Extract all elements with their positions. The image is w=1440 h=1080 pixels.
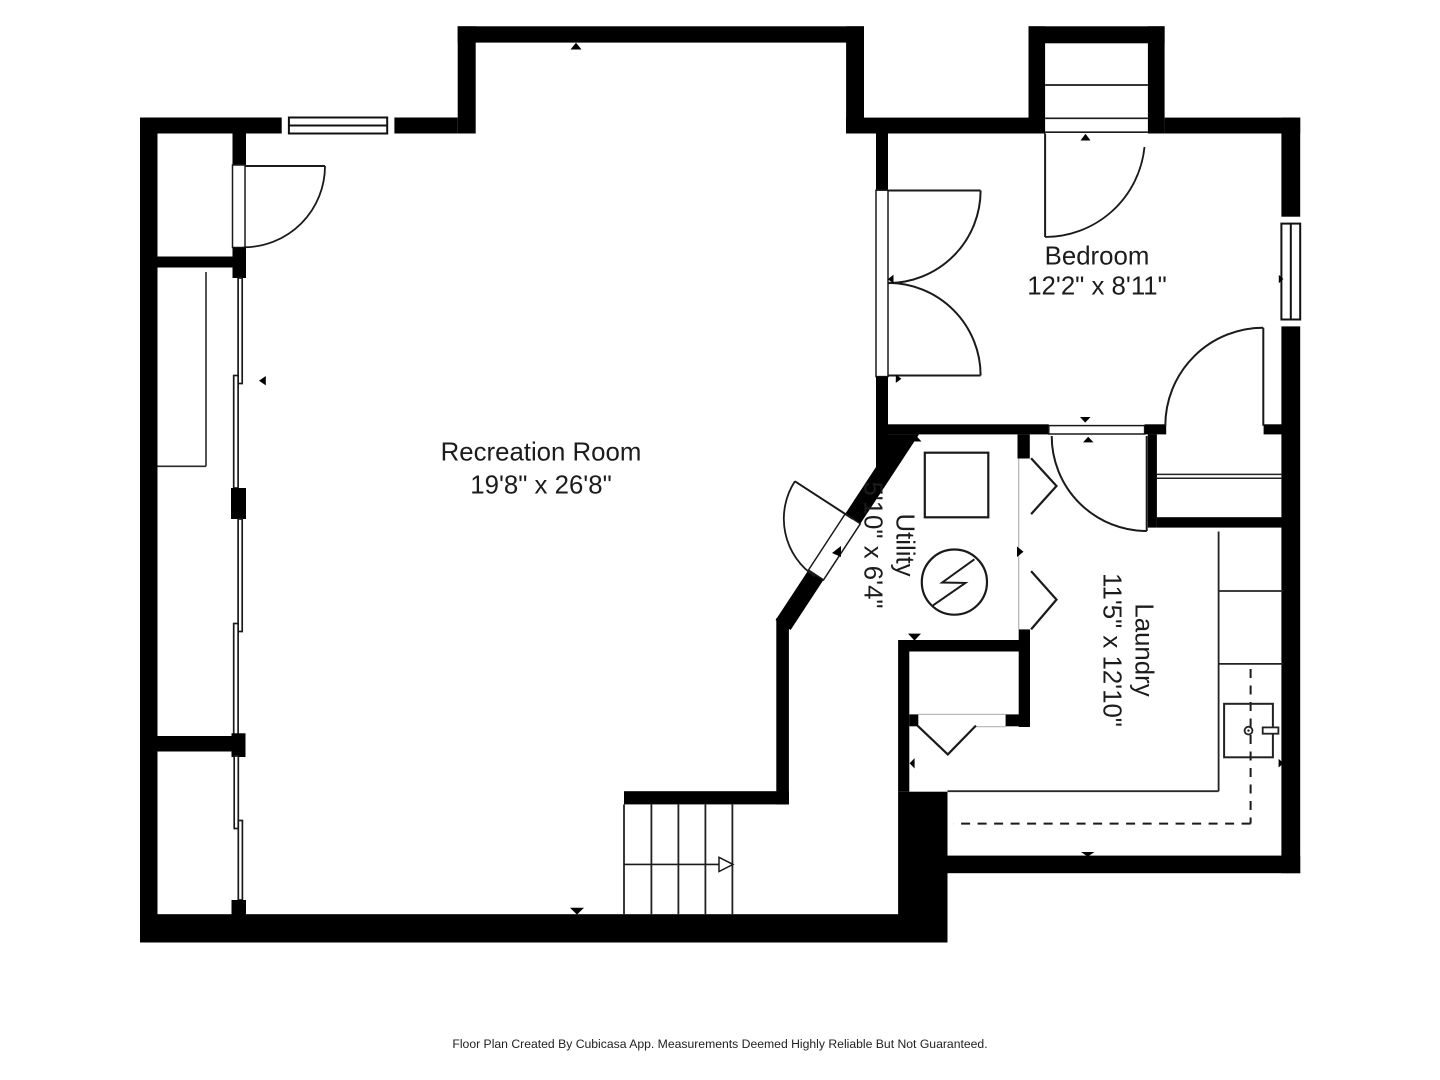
- svg-text:Bedroom: Bedroom: [1045, 243, 1150, 271]
- svg-text:Utility: Utility: [891, 513, 919, 576]
- svg-text:19'8" x 26'8": 19'8" x 26'8": [470, 472, 611, 500]
- svg-text:11'5" x 12'10": 11'5" x 12'10": [1098, 573, 1126, 727]
- svg-text:Laundry: Laundry: [1130, 603, 1158, 696]
- svg-text:Recreation Room: Recreation Room: [441, 439, 642, 467]
- svg-text:Floor Plan Created By Cubicasa: Floor Plan Created By Cubicasa App. Meas…: [452, 1037, 987, 1051]
- svg-text:12'2" x 8'11": 12'2" x 8'11": [1027, 273, 1167, 301]
- svg-text:5'10" x 6'4": 5'10" x 6'4": [859, 481, 887, 608]
